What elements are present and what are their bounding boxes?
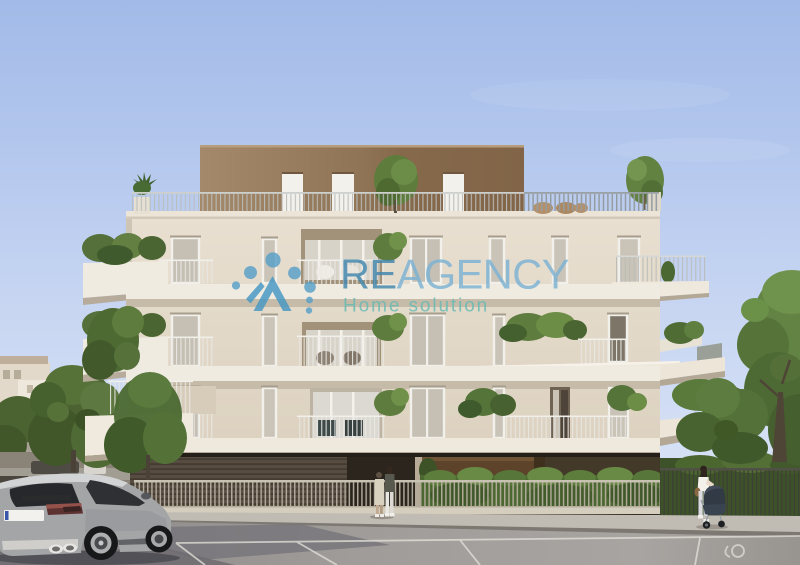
svg-text:REAGENCY: REAGENCY — [340, 251, 569, 298]
svg-text:Home solution: Home solution — [343, 296, 489, 317]
